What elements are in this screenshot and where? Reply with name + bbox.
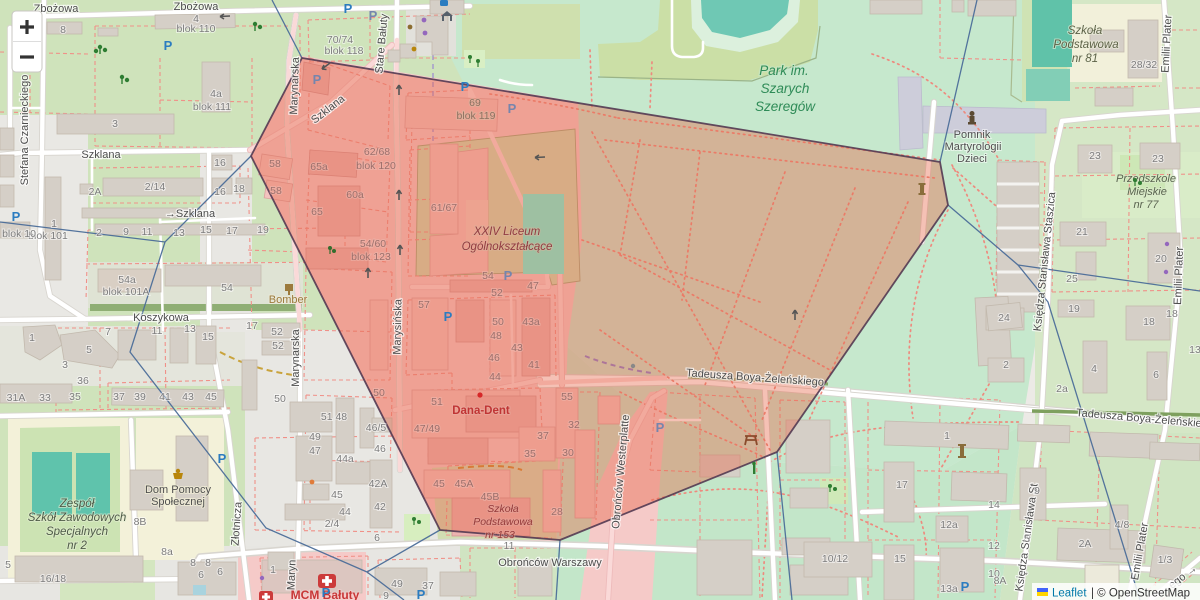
svg-text:1: 1 bbox=[51, 218, 57, 230]
svg-text:→Szklana: →Szklana bbox=[165, 208, 216, 220]
svg-text:2/14: 2/14 bbox=[145, 181, 166, 193]
svg-text:Zespół: Zespół bbox=[59, 498, 95, 510]
svg-text:14: 14 bbox=[988, 499, 1000, 511]
svg-text:46/5: 46/5 bbox=[366, 422, 387, 434]
svg-text:6: 6 bbox=[217, 566, 223, 578]
svg-text:2A: 2A bbox=[1079, 538, 1092, 550]
svg-text:18: 18 bbox=[233, 183, 245, 195]
svg-text:28/32: 28/32 bbox=[1131, 59, 1157, 71]
svg-text:Szkół Zawodowych: Szkół Zawodowych bbox=[28, 512, 126, 524]
svg-text:43: 43 bbox=[182, 391, 194, 403]
svg-text:17: 17 bbox=[226, 225, 238, 237]
svg-text:2/4: 2/4 bbox=[325, 518, 340, 530]
svg-text:Marynarska: Marynarska bbox=[290, 328, 302, 386]
svg-text:4a: 4a bbox=[210, 88, 222, 100]
svg-text:13: 13 bbox=[184, 323, 196, 335]
svg-text:P: P bbox=[313, 72, 322, 87]
svg-text:Dana-Dent: Dana-Dent bbox=[452, 405, 510, 417]
svg-text:Szklana: Szklana bbox=[81, 149, 121, 161]
svg-text:Przedszkole: Przedszkole bbox=[1116, 173, 1176, 185]
svg-text:Dom Pomocy: Dom Pomocy bbox=[145, 484, 212, 496]
svg-text:15: 15 bbox=[894, 553, 906, 565]
svg-text:32: 32 bbox=[568, 419, 580, 431]
svg-text:21: 21 bbox=[1076, 226, 1088, 238]
svg-text:25: 25 bbox=[1066, 273, 1078, 285]
svg-text:6: 6 bbox=[1153, 369, 1159, 381]
svg-text:5: 5 bbox=[5, 559, 11, 571]
svg-text:blok 119: blok 119 bbox=[457, 110, 496, 122]
svg-text:57: 57 bbox=[418, 299, 430, 311]
svg-text:47/49: 47/49 bbox=[414, 423, 440, 435]
svg-text:blok 118: blok 118 bbox=[325, 45, 364, 57]
svg-text:Specjalnych: Specjalnych bbox=[46, 526, 108, 538]
svg-text:13a: 13a bbox=[940, 583, 958, 595]
svg-text:Martyrologii: Martyrologii bbox=[945, 141, 1002, 153]
svg-text:P: P bbox=[417, 587, 426, 600]
svg-text:blok 111: blok 111 bbox=[193, 101, 231, 113]
svg-text:P: P bbox=[344, 1, 353, 16]
svg-text:4: 4 bbox=[1091, 363, 1097, 375]
svg-text:1: 1 bbox=[270, 564, 276, 576]
svg-text:48: 48 bbox=[490, 330, 502, 342]
svg-text:P: P bbox=[461, 79, 470, 94]
svg-text:16: 16 bbox=[214, 186, 226, 198]
svg-text:4/8: 4/8 bbox=[1115, 519, 1130, 531]
svg-text:9: 9 bbox=[1034, 485, 1040, 497]
svg-text:Podstawowa: Podstawowa bbox=[473, 516, 533, 528]
svg-text:50: 50 bbox=[373, 387, 385, 399]
svg-text:P: P bbox=[218, 451, 227, 466]
svg-text:45: 45 bbox=[331, 489, 343, 501]
svg-text:nr 81: nr 81 bbox=[1072, 53, 1098, 65]
svg-text:24: 24 bbox=[998, 312, 1010, 324]
svg-text:39: 39 bbox=[134, 391, 146, 403]
svg-text:50: 50 bbox=[274, 393, 286, 405]
svg-text:5: 5 bbox=[86, 344, 92, 356]
svg-text:51 48: 51 48 bbox=[321, 411, 347, 423]
svg-text:17: 17 bbox=[246, 320, 258, 332]
svg-text:8: 8 bbox=[60, 24, 66, 36]
svg-text:Ogólnokształcące: Ogólnokształcące bbox=[462, 241, 553, 253]
svg-text:41: 41 bbox=[528, 359, 540, 371]
svg-text:2: 2 bbox=[1003, 359, 1009, 371]
svg-text:12a: 12a bbox=[940, 519, 958, 531]
svg-text:blok 110: blok 110 bbox=[177, 23, 216, 35]
svg-text:69: 69 bbox=[469, 97, 481, 109]
svg-text:2: 2 bbox=[96, 227, 102, 239]
svg-text:Pomnik: Pomnik bbox=[954, 129, 991, 141]
svg-text:44: 44 bbox=[339, 506, 351, 518]
svg-text:blok 120: blok 120 bbox=[356, 160, 396, 172]
svg-text:58: 58 bbox=[270, 185, 282, 197]
svg-text:Bomber: Bomber bbox=[269, 294, 308, 306]
svg-text:46: 46 bbox=[488, 352, 500, 364]
svg-text:58: 58 bbox=[269, 158, 281, 170]
svg-text:8: 8 bbox=[190, 557, 196, 569]
svg-text:43a: 43a bbox=[522, 316, 540, 328]
svg-text:45: 45 bbox=[433, 478, 445, 490]
svg-text:8: 8 bbox=[205, 557, 211, 569]
svg-text:61/67: 61/67 bbox=[431, 202, 457, 214]
svg-text:nr 2: nr 2 bbox=[67, 540, 87, 552]
svg-text:Dzieci: Dzieci bbox=[957, 153, 987, 165]
svg-text:49: 49 bbox=[391, 578, 403, 590]
svg-text:37: 37 bbox=[113, 391, 125, 403]
svg-text:8a: 8a bbox=[161, 546, 173, 558]
svg-text:Koszykowa: Koszykowa bbox=[133, 312, 190, 324]
svg-text:54/60: 54/60 bbox=[360, 238, 386, 250]
svg-text:51: 51 bbox=[431, 396, 443, 408]
svg-text:Szkoła: Szkoła bbox=[487, 503, 519, 515]
svg-text:46: 46 bbox=[374, 443, 386, 455]
svg-text:1: 1 bbox=[29, 332, 35, 344]
svg-text:P: P bbox=[164, 38, 173, 53]
svg-text:P: P bbox=[504, 268, 513, 283]
svg-text:45: 45 bbox=[205, 391, 217, 403]
svg-text:Stefana Czarnieckiego: Stefana Czarnieckiego bbox=[19, 75, 31, 186]
svg-text:52: 52 bbox=[491, 287, 503, 299]
svg-text:5: 5 bbox=[1024, 533, 1030, 545]
svg-text:P: P bbox=[508, 101, 517, 116]
svg-text:44: 44 bbox=[489, 371, 501, 383]
svg-text:37: 37 bbox=[537, 430, 549, 442]
svg-text:XXIV Liceum: XXIV Liceum bbox=[473, 226, 541, 238]
svg-text:50: 50 bbox=[492, 316, 504, 328]
svg-text:Marysińska: Marysińska bbox=[392, 298, 405, 355]
svg-text:P: P bbox=[961, 579, 970, 594]
svg-text:54: 54 bbox=[221, 282, 233, 294]
svg-text:28: 28 bbox=[551, 506, 563, 518]
svg-text:Społecznej: Społecznej bbox=[151, 496, 205, 508]
svg-text:47: 47 bbox=[527, 280, 539, 292]
svg-text:19: 19 bbox=[257, 224, 269, 236]
svg-text:Podstawowa: Podstawowa bbox=[1053, 39, 1118, 51]
svg-text:blok 101A: blok 101A bbox=[103, 286, 150, 298]
svg-text:blok 10: blok 10 bbox=[2, 228, 36, 240]
svg-text:16/18: 16/18 bbox=[40, 573, 66, 585]
svg-text:3: 3 bbox=[112, 118, 118, 130]
svg-text:2A: 2A bbox=[89, 186, 102, 198]
svg-text:41: 41 bbox=[159, 391, 171, 403]
svg-text:47: 47 bbox=[309, 445, 321, 457]
svg-text:23: 23 bbox=[1089, 150, 1101, 162]
svg-text:55: 55 bbox=[561, 391, 573, 403]
svg-text:Marynarska: Marynarska bbox=[288, 56, 302, 115]
svg-text:17: 17 bbox=[896, 479, 908, 491]
svg-text:P: P bbox=[12, 209, 21, 224]
svg-text:20: 20 bbox=[1155, 253, 1167, 265]
svg-text:45B: 45B bbox=[481, 491, 500, 503]
svg-text:65a: 65a bbox=[310, 161, 328, 173]
svg-text:P: P bbox=[444, 309, 453, 324]
svg-text:11: 11 bbox=[142, 226, 153, 238]
svg-text:18: 18 bbox=[1143, 316, 1155, 328]
svg-text:1: 1 bbox=[944, 430, 950, 442]
svg-text:62/68: 62/68 bbox=[364, 146, 390, 158]
svg-text:2a: 2a bbox=[1056, 383, 1068, 395]
svg-text:33: 33 bbox=[39, 392, 51, 404]
svg-text:7: 7 bbox=[105, 326, 111, 338]
svg-text:| © OpenStreetMap: | © OpenStreetMap bbox=[1091, 588, 1190, 600]
svg-text:blok 123: blok 123 bbox=[351, 251, 391, 263]
svg-text:Leaflet: Leaflet bbox=[1052, 588, 1087, 600]
svg-text:13: 13 bbox=[173, 227, 185, 239]
svg-text:19: 19 bbox=[1068, 303, 1080, 315]
svg-text:10/12: 10/12 bbox=[822, 553, 848, 565]
svg-text:1/3: 1/3 bbox=[1158, 554, 1173, 566]
svg-text:35: 35 bbox=[69, 391, 81, 403]
svg-text:15: 15 bbox=[202, 331, 214, 343]
svg-text:6: 6 bbox=[198, 569, 204, 581]
svg-text:54: 54 bbox=[482, 270, 494, 282]
svg-text:65: 65 bbox=[311, 206, 323, 218]
svg-text:44a: 44a bbox=[336, 453, 354, 465]
svg-text:Maryn: Maryn bbox=[285, 559, 298, 590]
svg-text:52: 52 bbox=[271, 326, 283, 338]
svg-text:Szkoła: Szkoła bbox=[1068, 25, 1103, 37]
svg-text:8A: 8A bbox=[994, 575, 1007, 587]
svg-text:42A: 42A bbox=[369, 478, 388, 490]
svg-text:43: 43 bbox=[511, 342, 523, 354]
svg-text:42: 42 bbox=[374, 501, 386, 513]
svg-text:nr 77: nr 77 bbox=[1133, 199, 1159, 211]
svg-text:45A: 45A bbox=[455, 478, 474, 490]
svg-text:Emilii Plater: Emilii Plater bbox=[1172, 246, 1186, 305]
svg-text:8B: 8B bbox=[134, 516, 147, 528]
svg-text:Zbożowa: Zbożowa bbox=[174, 1, 220, 13]
svg-text:6: 6 bbox=[374, 532, 380, 544]
svg-text:12: 12 bbox=[988, 540, 1000, 552]
svg-text:16: 16 bbox=[214, 157, 226, 169]
svg-text:13: 13 bbox=[1189, 344, 1200, 356]
svg-text:15: 15 bbox=[200, 224, 212, 236]
svg-text:Obrońców Warszawy: Obrońców Warszawy bbox=[498, 557, 602, 569]
svg-text:31A: 31A bbox=[7, 392, 26, 404]
svg-text:P: P bbox=[656, 420, 665, 435]
svg-text:52: 52 bbox=[272, 340, 284, 352]
svg-text:49: 49 bbox=[309, 431, 321, 443]
svg-text:9: 9 bbox=[383, 590, 389, 600]
svg-text:Park im.: Park im. bbox=[759, 63, 809, 78]
svg-text:11: 11 bbox=[504, 540, 515, 552]
svg-text:9: 9 bbox=[123, 226, 129, 238]
svg-text:35: 35 bbox=[524, 448, 536, 460]
svg-text:P: P bbox=[369, 8, 378, 23]
svg-text:54a: 54a bbox=[118, 274, 136, 286]
svg-text:36: 36 bbox=[77, 375, 89, 387]
svg-text:Szeregów: Szeregów bbox=[755, 99, 816, 114]
svg-text:3: 3 bbox=[62, 359, 68, 371]
svg-text:Szarych: Szarych bbox=[761, 81, 810, 96]
svg-text:18: 18 bbox=[1166, 308, 1178, 320]
svg-text:Miejskie: Miejskie bbox=[1127, 186, 1167, 198]
svg-text:11: 11 bbox=[152, 325, 163, 337]
svg-text:30: 30 bbox=[562, 447, 574, 459]
svg-text:23: 23 bbox=[1152, 153, 1164, 165]
svg-text:60a: 60a bbox=[346, 189, 364, 201]
